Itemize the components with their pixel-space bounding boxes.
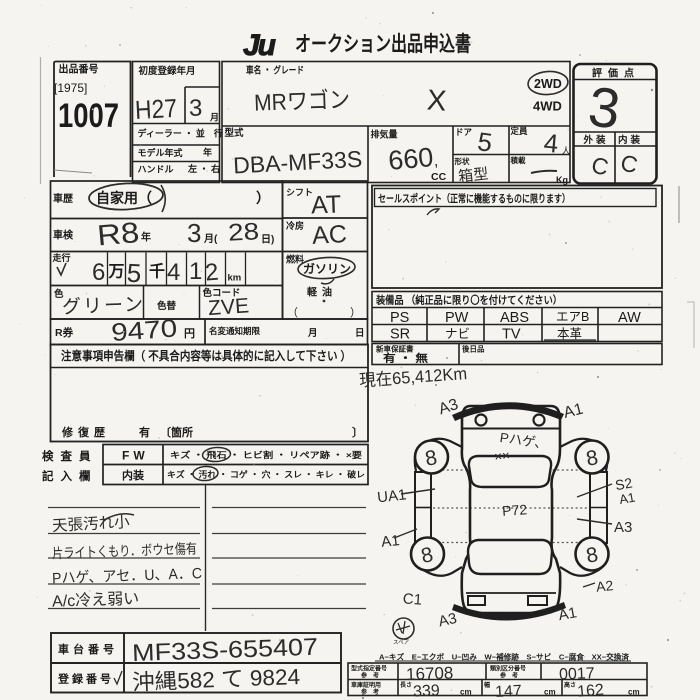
svg-text:高さ: 高さ (564, 681, 576, 689)
svg-text:月: 月 (209, 113, 219, 123)
svg-text:cm: cm (460, 688, 472, 697)
svg-text:箱型: 箱型 (458, 166, 490, 186)
svg-text:車検: 車検 (53, 229, 74, 242)
svg-text:X: X (426, 84, 448, 117)
svg-text:参 考: 参 考 (499, 672, 518, 680)
svg-text:16708: 16708 (406, 663, 454, 684)
svg-text:排気量: 排気量 (371, 129, 398, 140)
svg-text:AC: AC (311, 220, 347, 250)
svg-text:2: 2 (204, 258, 220, 286)
svg-text:外装: 外装 (583, 134, 609, 146)
svg-text:人: 人 (562, 146, 571, 156)
svg-text:ガソリン: ガソリン (303, 261, 351, 276)
svg-text:ABS: ABS (500, 310, 529, 326)
svg-text:0017: 0017 (559, 665, 595, 683)
svg-text:型式指定番号: 型式指定番号 (351, 665, 387, 673)
svg-text:エアB: エアB (556, 310, 589, 324)
svg-text:月(: 月( (203, 233, 218, 245)
svg-text:3: 3 (189, 95, 202, 122)
svg-text:月: 月 (307, 328, 318, 339)
svg-text:1007: 1007 (58, 97, 119, 135)
svg-text:P72: P72 (502, 501, 528, 519)
svg-text:H27: H27 (134, 93, 178, 125)
svg-text:4: 4 (543, 128, 560, 159)
svg-text:ドア: ドア (455, 127, 473, 137)
svg-text:4WD: 4WD (533, 99, 562, 114)
svg-text:MRワゴン: MRワゴン (254, 86, 351, 115)
svg-text:日: 日 (355, 328, 365, 339)
svg-text:色替: 色替 (157, 300, 177, 312)
svg-text:A2: A2 (595, 577, 614, 595)
svg-text:A3: A3 (614, 519, 632, 536)
svg-text:ハンドル: ハンドル (138, 165, 174, 175)
svg-text:グリーン: グリーン (62, 293, 146, 318)
svg-text:記入欄: 記入欄 (42, 469, 98, 483)
svg-text:自家用（: 自家用（ (96, 190, 152, 206)
svg-text:初度登録年月: 初度登録年月 (139, 65, 196, 77)
svg-text:円: 円 (184, 327, 195, 340)
svg-text:9470: 9470 (110, 314, 178, 347)
svg-text:5: 5 (126, 258, 142, 289)
svg-text:）: ） (256, 190, 270, 206)
svg-text:339: 339 (413, 682, 441, 700)
svg-text:形状: 形状 (455, 156, 470, 166)
svg-text:CC: CC (431, 171, 447, 183)
svg-text:SR: SR (390, 327, 410, 343)
svg-text:FW: FW (122, 449, 149, 463)
svg-text:車台番号: 車台番号 (58, 642, 118, 656)
svg-text:シフト: シフト (286, 188, 313, 198)
svg-text:注意事項申告欄（ 不具合内容等は具体的に記入して下さい ）: 注意事項申告欄（ 不具合内容等は具体的に記入して下さい ） (61, 348, 351, 363)
svg-text:A/c冷え弱い: A/c冷え弱い (52, 590, 140, 611)
svg-text:後日品: 後日品 (462, 344, 485, 354)
svg-text:参 考: 参 考 (360, 688, 379, 696)
svg-text:（: （ (287, 306, 298, 319)
svg-text:UA1: UA1 (376, 486, 407, 506)
svg-text:修復歴: 修復歴 (61, 425, 110, 439)
svg-text:車名 ・ グレード: 車名 ・ グレード (246, 65, 304, 77)
svg-text:キズ ・ 飛石 ・ ヒビ割 ・ リペア跡 ・ ×要: キズ ・ 飛石 ・ ヒビ割 ・ リペア跡 ・ ×要 (170, 450, 363, 460)
svg-text:A1: A1 (618, 490, 636, 508)
svg-text:内装: 内装 (618, 134, 643, 146)
svg-text:A−キズ E−エクボ U−凹み W−補修跡 S−サビ C−腐: A−キズ E−エクボ U−凹み W−補修跡 S−サビ C−腐食 XX−交換済 (379, 652, 630, 662)
svg-text:147: 147 (495, 683, 523, 700)
svg-text:ZVE: ZVE (207, 294, 249, 320)
svg-text:キズ ・ 汚れ ・ コゲ ・ 穴 ・ スレ ・ キレ ・ 破: キズ ・ 汚れ ・ コゲ ・ 穴 ・ スレ ・ キレ ・ 破レ (167, 470, 365, 480)
svg-text:本革: 本革 (557, 327, 582, 341)
svg-text:定員: 定員 (510, 126, 529, 136)
svg-text:有 ・ 無: 有 ・ 無 (383, 352, 429, 365)
svg-text:名変通知期限: 名変通知期限 (209, 326, 261, 336)
svg-text:軽油: 軽油 (307, 286, 337, 299)
svg-text:検査員: 検査員 (42, 449, 98, 463)
svg-text:〔箇所: 〔箇所 (160, 425, 193, 439)
svg-text:××: ×× (493, 448, 510, 465)
svg-text:C1: C1 (402, 590, 422, 608)
svg-text:AT: AT (311, 190, 342, 219)
svg-text:R8: R8 (96, 217, 141, 253)
svg-text:参 考: 参 考 (360, 672, 379, 680)
svg-text:車歴: 車歴 (53, 192, 73, 205)
svg-text:ナビ: ナビ (445, 327, 470, 341)
svg-text:幅: 幅 (484, 681, 490, 689)
svg-text:登録番号: 登録番号 (57, 672, 114, 686)
svg-text:積載: 積載 (510, 155, 526, 165)
svg-text:装備品 （純正品に限り〇を付けてください）: 装備品 （純正品に限り〇を付けてください） (375, 294, 562, 307)
svg-text:PS: PS (390, 310, 409, 326)
svg-text:車庫証明用: 車庫証明用 (351, 681, 381, 689)
svg-text:類別区分番号: 類別区分番号 (489, 665, 526, 673)
svg-text:2WD: 2WD (534, 77, 562, 91)
svg-text:千: 千 (149, 263, 165, 281)
svg-text:ディーラー ・ 並 行: ディーラー ・ 並 行 (138, 128, 223, 139)
svg-text:cm: cm (544, 688, 556, 697)
svg-text:cm: cm (628, 688, 640, 697)
svg-text:内装: 内装 (122, 468, 144, 482)
svg-text:）: ） (350, 306, 361, 319)
svg-text:左 ・ 右: 左 ・ 右 (187, 163, 220, 174)
svg-text:Kg: Kg (556, 175, 568, 185)
svg-text:走行: 走行 (52, 252, 71, 263)
svg-text:28: 28 (227, 218, 259, 247)
svg-text:〕: 〕 (352, 426, 363, 439)
svg-text:PW: PW (445, 310, 469, 326)
svg-text:長さ: 長さ (400, 681, 412, 689)
svg-text:162: 162 (577, 682, 605, 700)
svg-text:年: 年 (203, 147, 212, 158)
svg-text:万: 万 (108, 264, 125, 281)
svg-text:A1: A1 (380, 532, 400, 551)
svg-text:TV: TV (502, 327, 521, 343)
svg-text:4: 4 (167, 259, 180, 286)
svg-text:A1: A1 (557, 604, 578, 624)
svg-text:[1975]: [1975] (54, 81, 87, 95)
svg-text:Ju: Ju (243, 29, 276, 62)
svg-text:km: km (228, 273, 242, 284)
svg-text:モデル年式: モデル年式 (138, 147, 183, 158)
svg-text:型式: 型式 (225, 127, 245, 139)
svg-text:年: 年 (141, 231, 151, 244)
svg-text:スペア: スペア (393, 639, 410, 646)
svg-text:有: 有 (139, 425, 150, 439)
svg-text:出品番号: 出品番号 (59, 63, 99, 76)
svg-text:3: 3 (187, 218, 201, 248)
svg-text:燃料: 燃料 (286, 254, 304, 265)
svg-text:1: 1 (189, 258, 202, 285)
svg-text:R券: R券 (55, 326, 74, 339)
svg-text:日): 日) (261, 234, 274, 246)
svg-text:オークション出品申込書: オークション出品申込書 (295, 32, 471, 56)
svg-text:AW: AW (618, 310, 641, 326)
svg-text:セールスポイント（正常に機能するものに限ります）: セールスポイント（正常に機能するものに限ります） (378, 192, 570, 205)
svg-text:冷房: 冷房 (286, 220, 304, 231)
svg-text:6: 6 (92, 259, 105, 286)
